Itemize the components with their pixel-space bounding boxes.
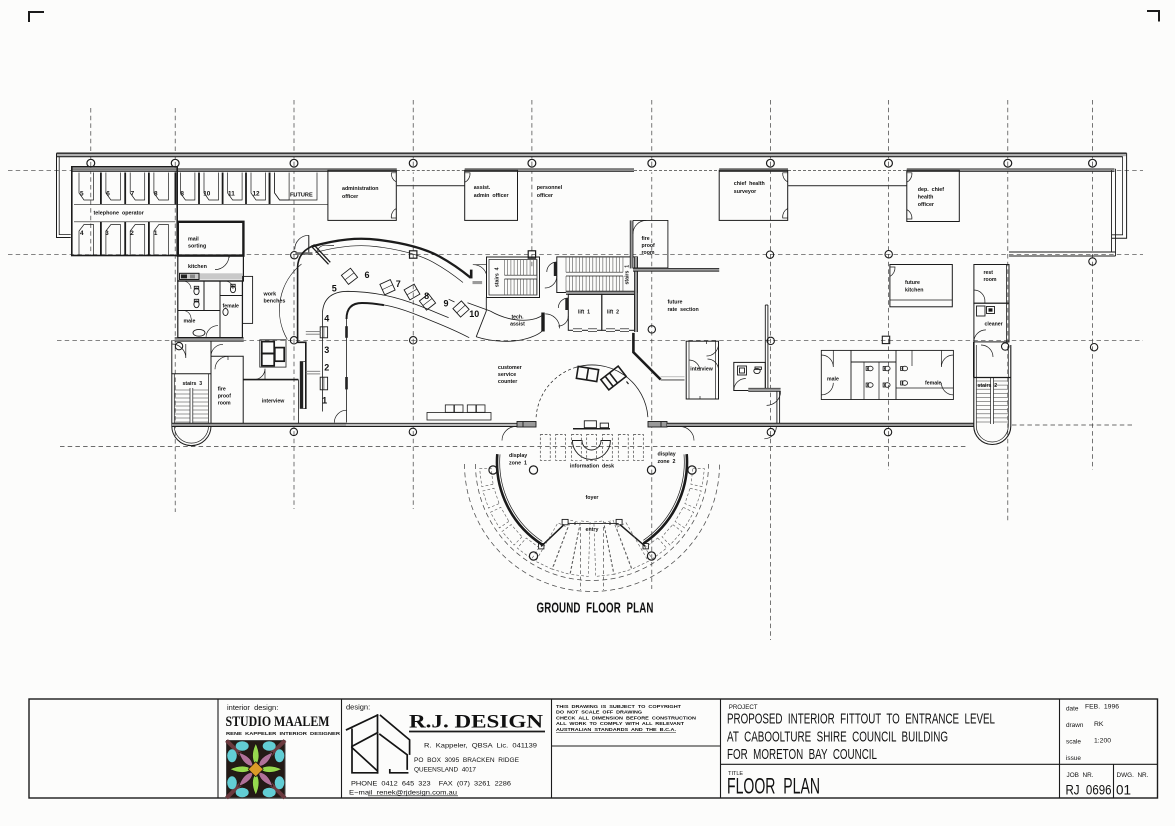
svg-text:personnel: personnel [537, 185, 563, 191]
svg-text:officer: officer [537, 193, 553, 199]
svg-text:zone 2: zone 2 [658, 459, 676, 465]
svg-text:interview: interview [690, 366, 713, 372]
svg-text:lift 2: lift 2 [607, 309, 619, 315]
svg-text:1:200: 1:200 [1094, 738, 1111, 745]
svg-text:proof: proof [218, 393, 232, 399]
svg-text:display: display [658, 451, 676, 457]
svg-text:drawn: drawn [1066, 722, 1084, 729]
svg-text:2: 2 [324, 363, 329, 373]
svg-text:zone 1: zone 1 [509, 461, 527, 467]
svg-text:4: 4 [80, 230, 84, 237]
svg-text:assist.: assist. [474, 185, 491, 191]
svg-text:service: service [498, 372, 516, 378]
svg-text:interior design:: interior design: [227, 703, 278, 712]
svg-text:5: 5 [80, 190, 84, 197]
svg-text:6: 6 [364, 270, 369, 280]
svg-text:fire: fire [642, 236, 650, 242]
svg-text:kitchen: kitchen [188, 264, 207, 270]
svg-text:7: 7 [396, 279, 401, 289]
svg-text:STUDIO MAALEM: STUDIO MAALEM [226, 714, 330, 730]
svg-text:tech.: tech. [511, 314, 524, 320]
svg-text:stairs 3: stairs 3 [183, 381, 203, 387]
svg-text:PHONE 0412 645 323 FAX: PHONE 0412 645 323 FAX (07) 3261 2286 [351, 780, 511, 787]
svg-text:1: 1 [154, 230, 158, 237]
svg-text:ALL WORK TO COMPLY WITH A: ALL WORK TO COMPLY WITH ALL RELEVANT [556, 721, 684, 727]
svg-text:AUSTRALIAN STANDARDS AND TH: AUSTRALIAN STANDARDS AND THE B.C.A. [556, 727, 677, 733]
svg-text:male: male [184, 319, 196, 325]
svg-text:DO NOT SCALE OFF DRAWING: DO NOT SCALE OFF DRAWING [556, 710, 642, 716]
svg-text:10: 10 [203, 190, 211, 197]
svg-text:telephone operator: telephone operator [94, 210, 145, 216]
svg-text:future: future [905, 280, 920, 286]
svg-text:R. Kappeler, QBSA Lic. 041: R. Kappeler, QBSA Lic. 041139 [424, 743, 537, 750]
svg-text:01: 01 [1116, 783, 1131, 798]
svg-text:PROPOSED INTERIOR FITTOUT T: PROPOSED INTERIOR FITTOUT TO ENTRANCE LE… [727, 711, 995, 728]
svg-text:cleaner: cleaner [985, 321, 1003, 327]
svg-text:rate section: rate section [668, 307, 699, 313]
svg-text:room: room [218, 400, 231, 406]
svg-text:customer: customer [498, 365, 522, 371]
svg-text:administration: administration [342, 186, 379, 192]
svg-text:7: 7 [131, 190, 135, 197]
svg-text:male: male [827, 377, 839, 383]
svg-text:foyer: foyer [586, 495, 599, 501]
svg-text:information desk: information desk [570, 463, 614, 469]
svg-text:stairs 2: stairs 2 [978, 383, 998, 389]
svg-text:8: 8 [424, 291, 429, 301]
svg-text:2: 2 [130, 230, 134, 237]
svg-text:RJ 0696: RJ 0696 [1066, 783, 1112, 798]
svg-text:benches: benches [264, 298, 286, 304]
svg-text:room: room [642, 250, 655, 256]
svg-text:design:: design: [346, 703, 370, 712]
svg-text:scale: scale [1066, 739, 1081, 746]
svg-text:PO BOX 3095 BRACKEN RIDGE: PO BOX 3095 BRACKEN RIDGE [414, 757, 520, 764]
svg-text:RENE KAPPELER INTERIOR DESI: RENE KAPPELER INTERIOR DESIGNER [226, 731, 341, 737]
svg-text:4: 4 [324, 313, 329, 323]
svg-text:FEB. 1996: FEB. 1996 [1085, 704, 1119, 711]
svg-text:FLOOR PLAN: FLOOR PLAN [727, 773, 820, 798]
svg-text:QUEENSLAND 4017: QUEENSLAND 4017 [414, 767, 476, 774]
svg-text:entry: entry [586, 527, 599, 533]
svg-text:8: 8 [154, 190, 158, 197]
svg-text:CHECK ALL DIMENSION BEFORE: CHECK ALL DIMENSION BEFORE CONSTRUCTION [556, 715, 697, 721]
svg-text:1: 1 [322, 395, 327, 405]
svg-text:sorting: sorting [188, 244, 206, 250]
svg-text:fire: fire [218, 386, 226, 392]
svg-text:date: date [1066, 706, 1079, 713]
svg-text:assist: assist [510, 321, 525, 327]
svg-text:counter: counter [498, 379, 517, 385]
svg-text:issue: issue [1066, 755, 1081, 762]
svg-text:health: health [918, 195, 934, 201]
svg-text:3: 3 [324, 345, 329, 355]
svg-text:FUTURE: FUTURE [290, 192, 313, 198]
svg-text:admin officer: admin officer [474, 193, 509, 199]
svg-text:officer: officer [918, 202, 934, 208]
svg-text:DWG. NR.: DWG. NR. [1117, 772, 1149, 779]
svg-text:stairs 4: stairs 4 [495, 267, 501, 287]
svg-text:mail: mail [188, 237, 199, 243]
svg-text:display: display [509, 453, 527, 459]
svg-text:12: 12 [253, 190, 261, 197]
svg-text:dep. chief: dep. chief [918, 187, 944, 193]
svg-text:proof: proof [642, 243, 656, 249]
svg-text:RK: RK [1094, 721, 1104, 728]
svg-text:chief health: chief health [734, 181, 765, 187]
svg-text:AT CABOOLTURE SHIRE COUNCIL: AT CABOOLTURE SHIRE COUNCIL BUILDING [727, 728, 948, 745]
svg-text:FOR MORETON BAY COUNCIL: FOR MORETON BAY COUNCIL [727, 746, 877, 763]
svg-text:female: female [223, 303, 240, 309]
svg-text:3: 3 [105, 230, 109, 237]
svg-text:E−mail renek@rjdesign.com.au: E−mail renek@rjdesign.com.au [349, 789, 457, 796]
svg-text:THIS DRAWING IS SUBJECT TO: THIS DRAWING IS SUBJECT TO COPYRIGHT [556, 704, 681, 710]
svg-text:8: 8 [180, 190, 184, 197]
svg-text:kitchen: kitchen [905, 287, 924, 293]
svg-text:stairs 1: stairs 1 [625, 265, 631, 285]
svg-text:6: 6 [106, 190, 110, 197]
svg-text:lift 1: lift 1 [578, 309, 590, 315]
svg-text:R.J. DESIGN: R.J. DESIGN [409, 713, 544, 733]
svg-text:female: female [925, 381, 942, 387]
svg-text:GROUND FLOOR PLAN: GROUND FLOOR PLAN [537, 600, 654, 617]
svg-text:11: 11 [228, 190, 235, 197]
svg-text:5: 5 [332, 284, 337, 294]
svg-text:9: 9 [443, 298, 448, 308]
svg-text:JOB NR.: JOB NR. [1067, 772, 1094, 779]
svg-text:10: 10 [469, 309, 479, 319]
svg-text:rest: rest [984, 270, 994, 276]
svg-text:work: work [263, 291, 277, 297]
svg-text:interview: interview [262, 398, 285, 404]
svg-text:surveyor: surveyor [734, 189, 756, 195]
svg-text:future: future [668, 300, 683, 306]
svg-text:officer: officer [342, 194, 358, 200]
svg-text:room: room [984, 277, 997, 283]
